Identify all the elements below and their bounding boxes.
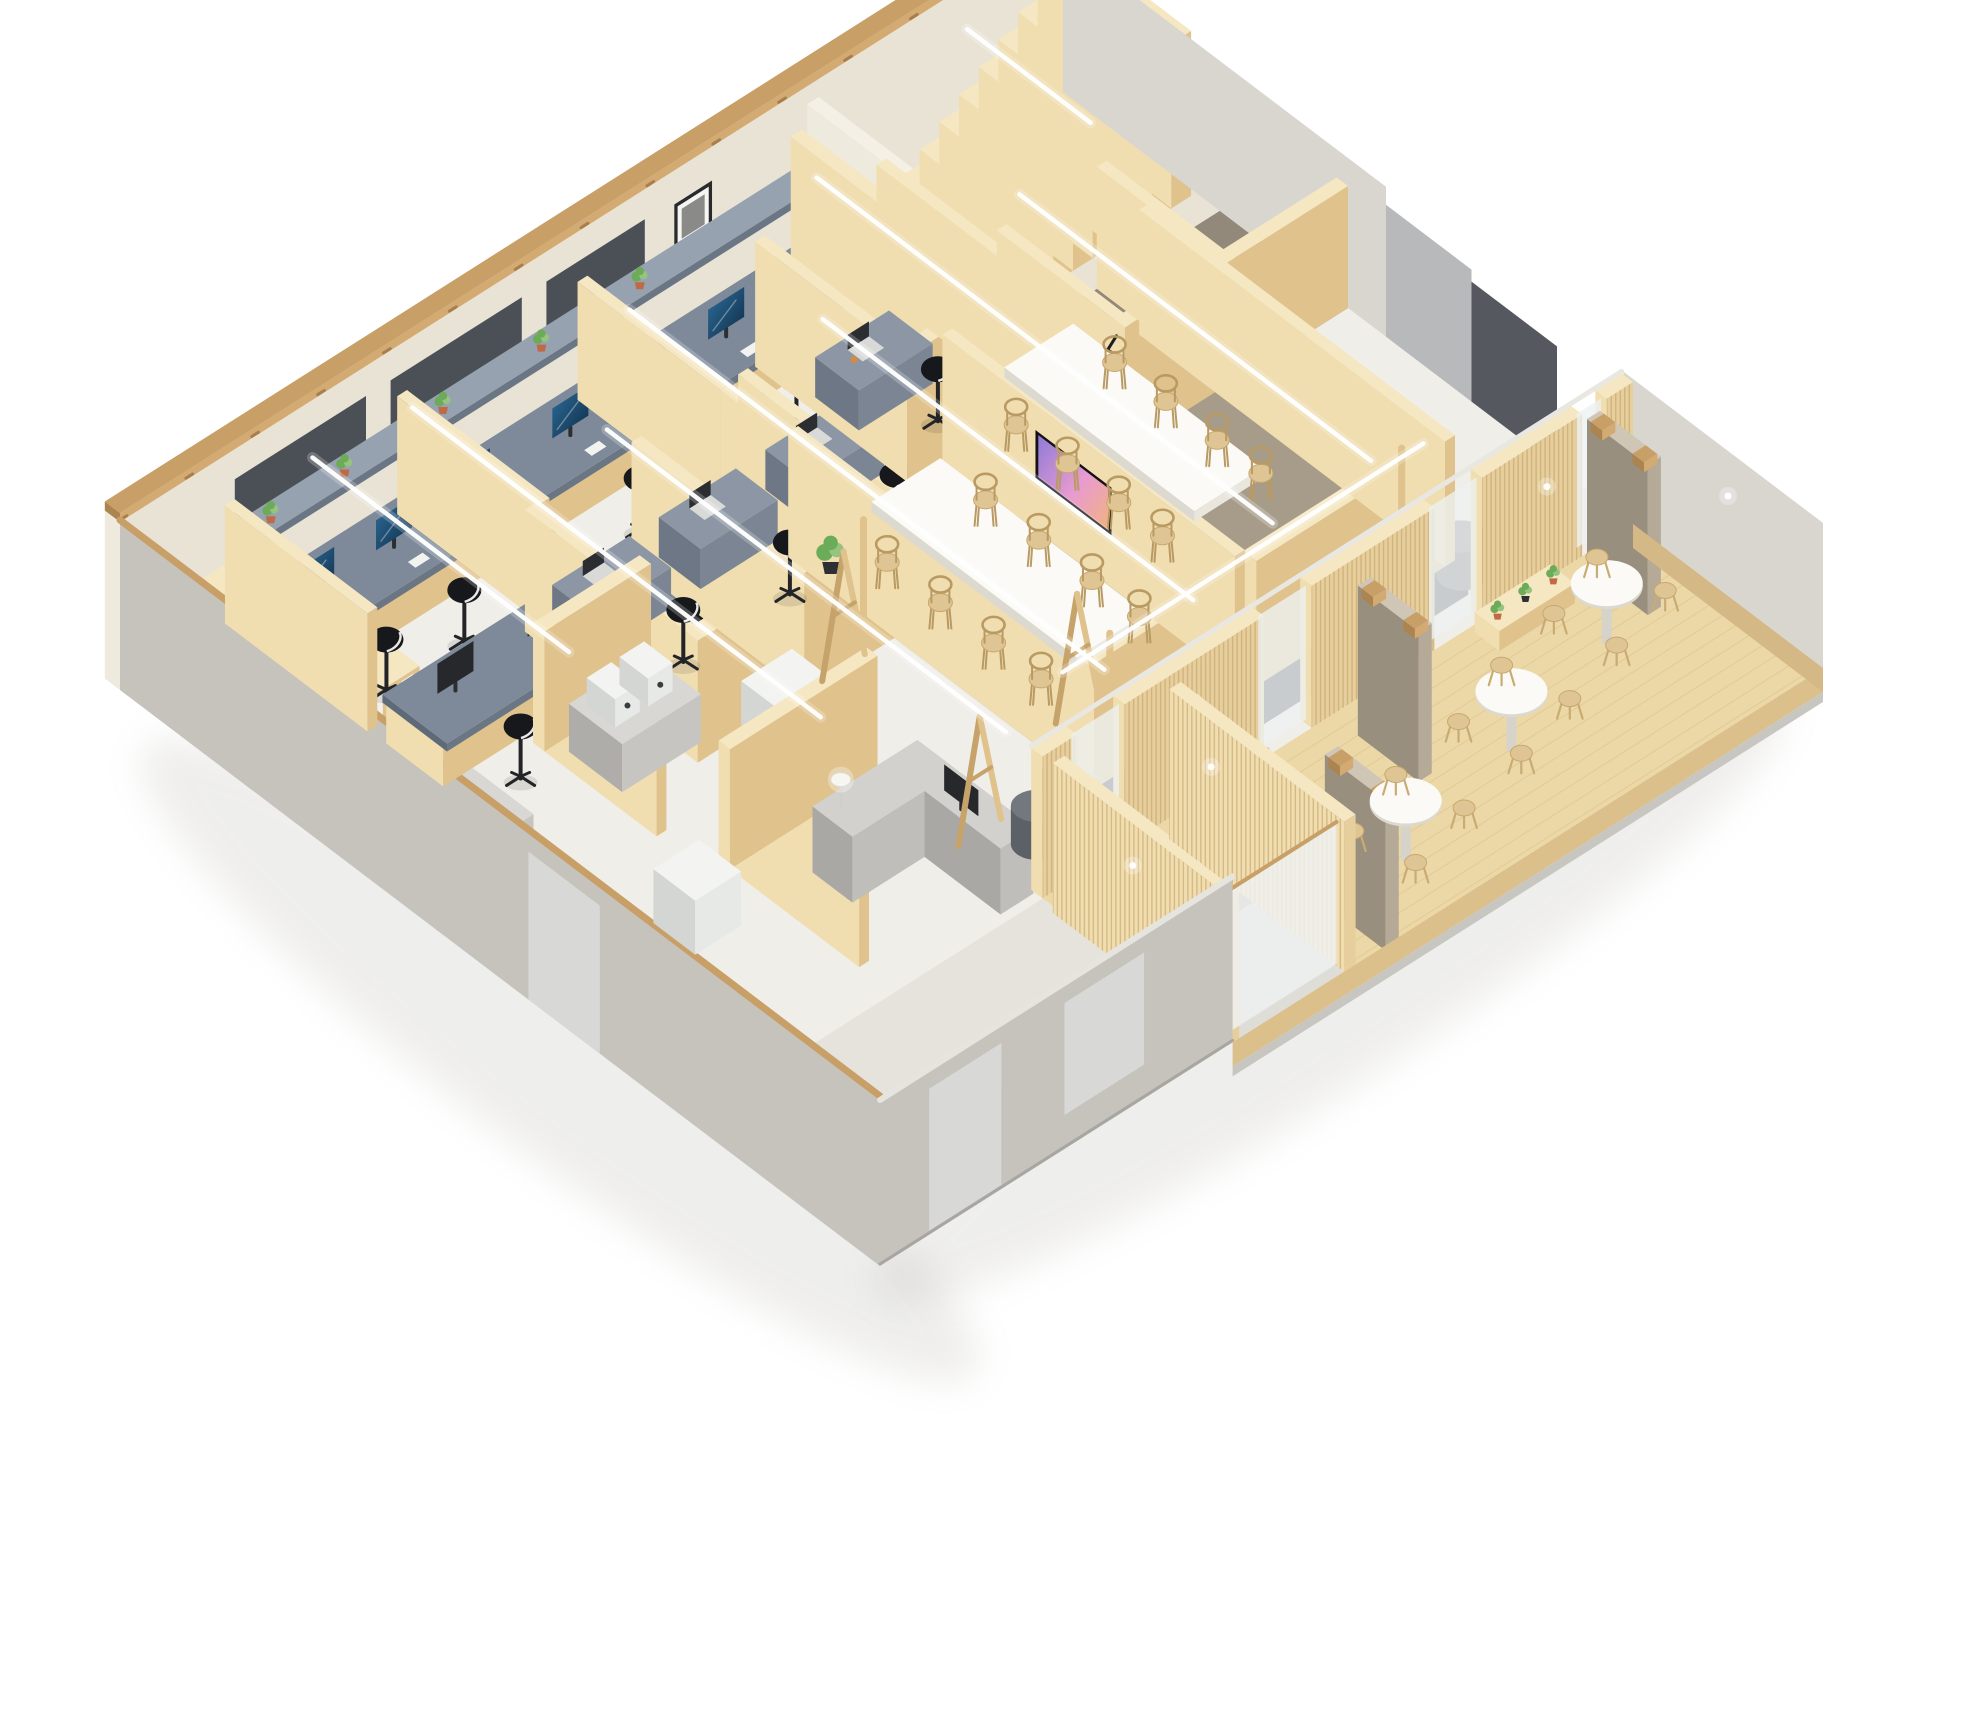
mug — [851, 356, 858, 363]
office-floorplan-3d-render: Isometric 3D cutaway rendering of a wood… — [0, 0, 1980, 1712]
page: Isometric 3D cutaway rendering of a wood… — [0, 0, 1980, 1712]
